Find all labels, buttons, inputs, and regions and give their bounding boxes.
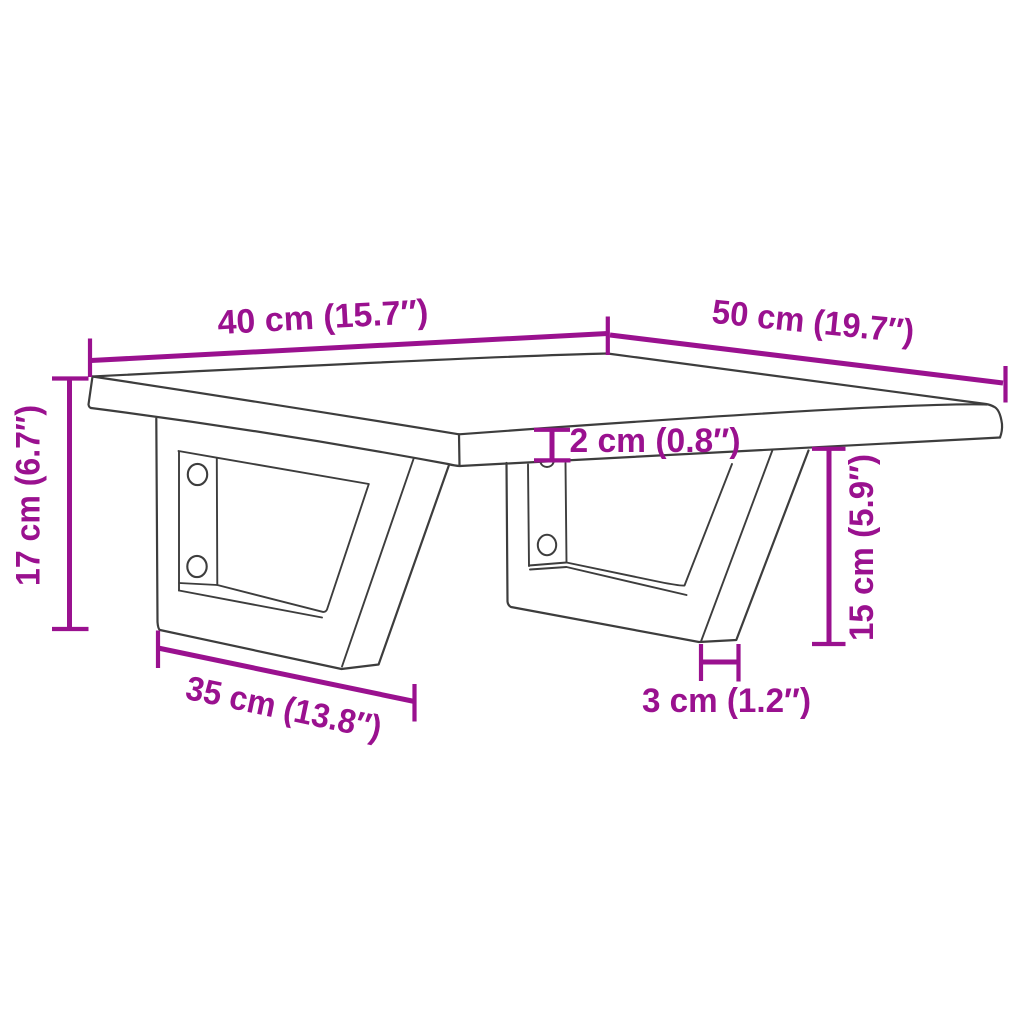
svg-text:2 cm (0.8″): 2 cm (0.8″) [570,422,741,460]
svg-text:15 cm (5.9″): 15 cm (5.9″) [843,454,881,641]
svg-text:3 cm (1.2″): 3 cm (1.2″) [642,682,811,720]
svg-text:17 cm (6.7″): 17 cm (6.7″) [10,405,48,586]
